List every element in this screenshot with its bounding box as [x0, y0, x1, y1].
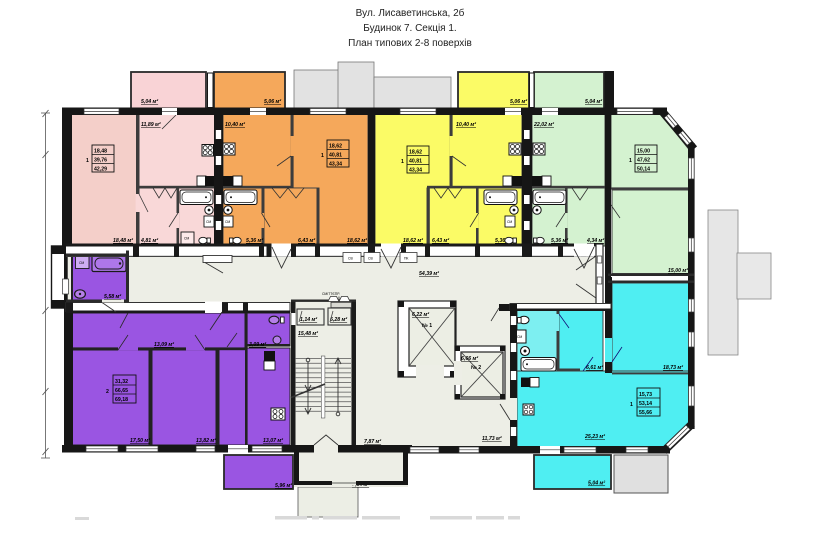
svg-text:54,39 м²: 54,39 м²	[419, 271, 439, 277]
svg-text:2: 2	[106, 389, 109, 395]
svg-text:5,06 м²: 5,06 м²	[264, 99, 281, 105]
svg-text:11,73 м²: 11,73 м²	[482, 436, 502, 442]
svg-text:18,48: 18,48	[94, 149, 107, 155]
svg-text:13,07 м²: 13,07 м²	[263, 438, 283, 444]
svg-text:СМ: СМ	[206, 220, 211, 224]
svg-text:Будинок 7. Секція 1.: Будинок 7. Секція 1.	[363, 23, 456, 34]
svg-text:ПК: ПК	[404, 257, 408, 261]
svg-text:50,14: 50,14	[637, 167, 650, 173]
svg-text:6,43 м²: 6,43 м²	[298, 238, 315, 244]
svg-text:5,04 м²: 5,04 м²	[141, 99, 158, 105]
svg-text:39,76: 39,76	[94, 158, 107, 164]
svg-text:18,62 м²: 18,62 м²	[347, 238, 367, 244]
svg-text:10,40 м²: 10,40 м²	[456, 122, 476, 128]
svg-text:1: 1	[86, 158, 89, 164]
svg-text:5,36 м²: 5,36 м²	[551, 238, 568, 244]
svg-text:43,34: 43,34	[409, 168, 422, 174]
svg-text:47,62: 47,62	[637, 158, 650, 164]
svg-text:СМ: СМ	[507, 220, 512, 224]
svg-text:11,89 м²: 11,89 м²	[141, 122, 161, 128]
svg-text:66,65: 66,65	[115, 388, 128, 394]
svg-text:18,62: 18,62	[409, 150, 422, 156]
svg-text:18,62: 18,62	[329, 144, 342, 150]
svg-text:СМ: СМ	[225, 220, 230, 224]
svg-text:5,36 м²: 5,36 м²	[246, 238, 263, 244]
svg-text:43,34: 43,34	[329, 162, 342, 168]
svg-text:69,18: 69,18	[115, 397, 128, 403]
svg-text:18,48 м²: 18,48 м²	[113, 238, 133, 244]
svg-text:№ 2: № 2	[471, 365, 481, 371]
svg-text:13,82 м²: 13,82 м²	[196, 438, 216, 444]
svg-text:СМІТТЄПР.: СМІТТЄПР.	[322, 292, 340, 296]
svg-text:55,66: 55,66	[639, 410, 652, 416]
svg-text:6,61 м²: 6,61 м²	[586, 365, 603, 371]
svg-text:31,32: 31,32	[115, 379, 128, 385]
svg-text:5,96 м²: 5,96 м²	[275, 483, 292, 489]
svg-text:6,28 м²: 6,28 м²	[330, 317, 347, 323]
svg-text:40,81: 40,81	[409, 159, 422, 165]
svg-text:СМ: СМ	[184, 237, 189, 241]
svg-text:СМ: СМ	[79, 261, 84, 265]
svg-text:1,14 м²: 1,14 м²	[300, 317, 317, 323]
svg-text:5,04 м²: 5,04 м²	[585, 99, 602, 105]
svg-text:Вул. Лисаветинська, 2б: Вул. Лисаветинська, 2б	[356, 7, 465, 19]
svg-text:10,40 м²: 10,40 м²	[225, 122, 245, 128]
svg-text:СВ: СВ	[368, 257, 373, 261]
svg-text:15,48 м²: 15,48 м²	[298, 331, 318, 337]
svg-text:25,23 м²: 25,23 м²	[584, 434, 605, 440]
svg-text:7,87 м²: 7,87 м²	[364, 439, 381, 445]
svg-text:1: 1	[630, 402, 633, 408]
svg-text:№ 1: № 1	[422, 323, 432, 329]
svg-text:СВ: СВ	[348, 257, 353, 261]
svg-text:15,73: 15,73	[639, 392, 652, 398]
svg-text:18,62 м²: 18,62 м²	[403, 238, 423, 244]
svg-text:18,73 м²: 18,73 м²	[663, 365, 683, 371]
svg-text:6,66 м²: 6,66 м²	[461, 356, 478, 362]
svg-text:40,81: 40,81	[329, 153, 342, 159]
svg-text:1: 1	[629, 158, 632, 164]
svg-text:42,29: 42,29	[94, 167, 107, 173]
svg-text:1: 1	[401, 159, 404, 165]
svg-text:6,22 м²: 6,22 м²	[412, 312, 429, 318]
svg-text:6,43 м²: 6,43 м²	[432, 238, 449, 244]
svg-text:17,50 м²: 17,50 м²	[130, 438, 150, 444]
svg-text:4,34 м²: 4,34 м²	[586, 238, 604, 244]
svg-text:3,09 м²: 3,09 м²	[249, 342, 266, 348]
svg-text:22,02 м²: 22,02 м²	[533, 122, 554, 128]
svg-text:53,14: 53,14	[639, 401, 652, 407]
svg-text:4,81 м²: 4,81 м²	[140, 238, 158, 244]
svg-text:5,58 м²: 5,58 м²	[104, 294, 121, 300]
svg-text:5,06 м²: 5,06 м²	[510, 99, 527, 105]
svg-text:СМ: СМ	[517, 335, 522, 339]
svg-text:План типових 2-8 поверхів: План типових 2-8 поверхів	[348, 38, 472, 49]
svg-text:1: 1	[321, 153, 324, 159]
svg-text:15,00 м²: 15,00 м²	[668, 268, 688, 274]
svg-text:13,09 м²: 13,09 м²	[154, 342, 174, 348]
svg-text:5,04 м²: 5,04 м²	[588, 481, 605, 487]
svg-text:15,00: 15,00	[637, 149, 650, 155]
